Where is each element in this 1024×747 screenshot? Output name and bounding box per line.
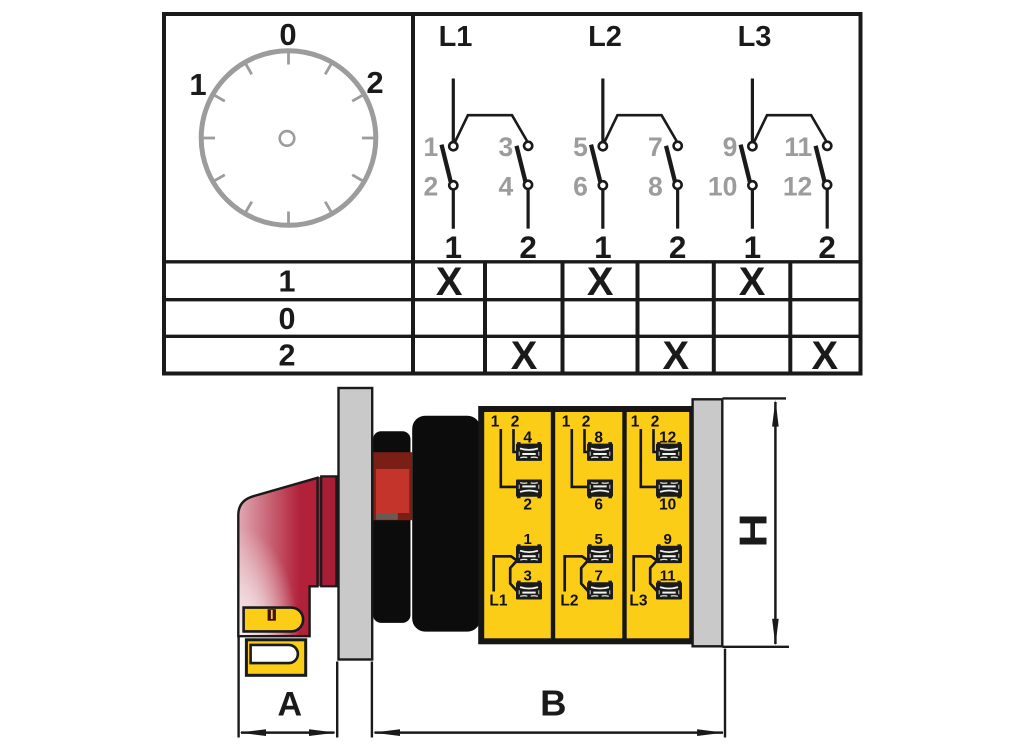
- svg-text:2: 2: [519, 229, 537, 265]
- svg-text:4: 4: [523, 430, 532, 447]
- svg-text:8: 8: [594, 430, 603, 447]
- svg-text:2: 2: [523, 497, 532, 514]
- svg-text:X: X: [511, 334, 538, 378]
- svg-text:1: 1: [631, 414, 640, 431]
- svg-text:10: 10: [708, 172, 737, 202]
- svg-text:X: X: [587, 260, 614, 304]
- svg-text:L1: L1: [439, 21, 473, 53]
- svg-text:X: X: [663, 334, 690, 378]
- svg-text:2: 2: [669, 229, 687, 265]
- svg-text:9: 9: [723, 132, 738, 162]
- svg-text:1: 1: [189, 67, 206, 102]
- svg-text:1: 1: [491, 414, 500, 431]
- svg-text:0: 0: [279, 302, 296, 336]
- svg-text:5: 5: [595, 531, 603, 548]
- svg-text:11: 11: [660, 568, 676, 585]
- svg-text:2: 2: [511, 414, 520, 431]
- svg-text:7: 7: [595, 568, 603, 585]
- svg-text:6: 6: [594, 497, 603, 514]
- svg-text:1: 1: [424, 132, 439, 162]
- svg-text:L3: L3: [629, 593, 647, 610]
- svg-text:3: 3: [524, 568, 532, 585]
- svg-text:2: 2: [279, 339, 296, 373]
- svg-text:2: 2: [651, 414, 660, 431]
- svg-text:4: 4: [498, 172, 513, 202]
- svg-text:9: 9: [664, 531, 672, 548]
- svg-text:L1: L1: [489, 593, 507, 610]
- svg-text:B: B: [540, 683, 566, 724]
- svg-text:10: 10: [659, 497, 676, 514]
- svg-text:A: A: [278, 686, 303, 724]
- svg-text:11: 11: [784, 132, 812, 162]
- svg-text:12: 12: [783, 172, 812, 202]
- svg-text:7: 7: [648, 132, 663, 162]
- svg-text:6: 6: [573, 172, 588, 202]
- svg-text:2: 2: [424, 172, 439, 202]
- svg-text:L3: L3: [738, 21, 772, 53]
- svg-text:5: 5: [573, 132, 588, 162]
- svg-text:1: 1: [562, 414, 571, 431]
- svg-text:L2: L2: [588, 21, 622, 53]
- svg-text:X: X: [739, 260, 766, 304]
- svg-text:2: 2: [818, 229, 836, 265]
- svg-text:8: 8: [648, 172, 663, 202]
- svg-text:1: 1: [524, 531, 532, 548]
- svg-text:X: X: [436, 260, 463, 304]
- svg-text:2: 2: [582, 414, 591, 431]
- svg-text:3: 3: [498, 132, 513, 162]
- svg-text:X: X: [812, 334, 839, 378]
- svg-text:12: 12: [659, 430, 676, 447]
- svg-text:L2: L2: [560, 593, 578, 610]
- svg-text:2: 2: [366, 65, 383, 100]
- svg-text:1: 1: [279, 265, 296, 299]
- svg-text:H: H: [733, 513, 776, 547]
- svg-text:0: 0: [279, 17, 296, 52]
